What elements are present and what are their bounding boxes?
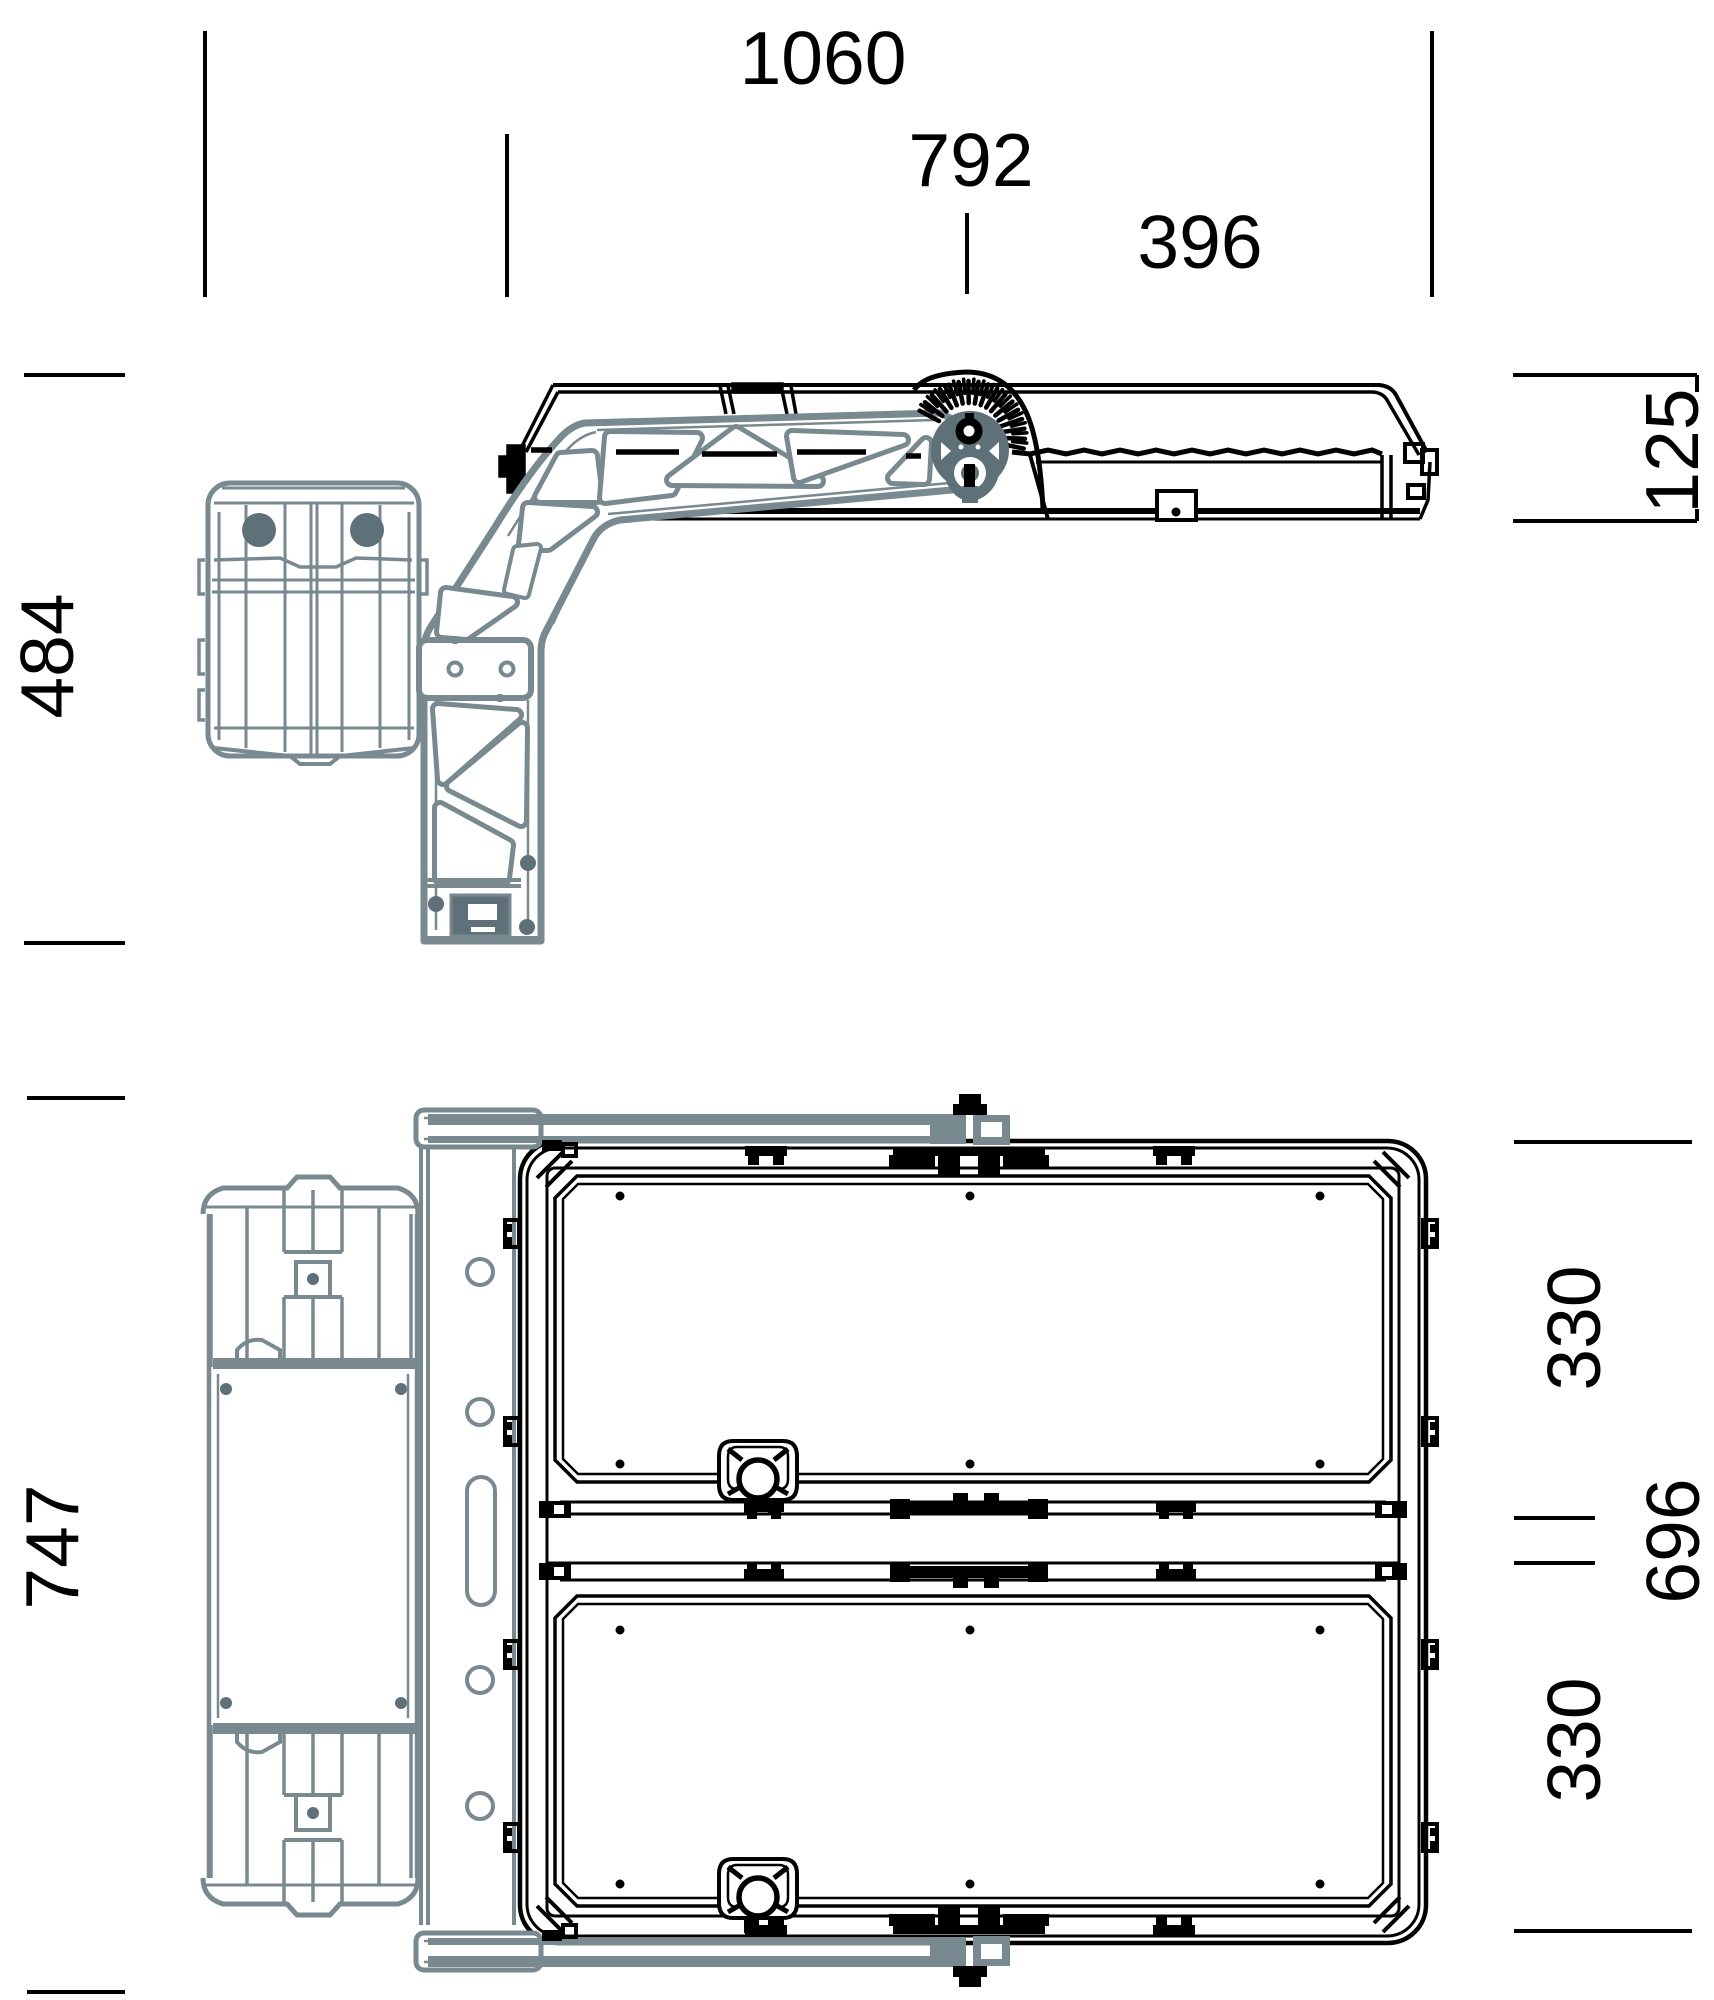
svg-text:330: 330 (1532, 1677, 1616, 1802)
svg-text:747: 747 (10, 1484, 94, 1609)
svg-text:484: 484 (5, 593, 89, 718)
svg-text:125: 125 (1630, 388, 1714, 513)
svg-text:1060: 1060 (740, 16, 907, 100)
svg-text:330: 330 (1532, 1265, 1616, 1390)
svg-text:696: 696 (1631, 1478, 1714, 1603)
svg-text:396: 396 (1137, 200, 1262, 284)
svg-text:792: 792 (908, 118, 1033, 202)
